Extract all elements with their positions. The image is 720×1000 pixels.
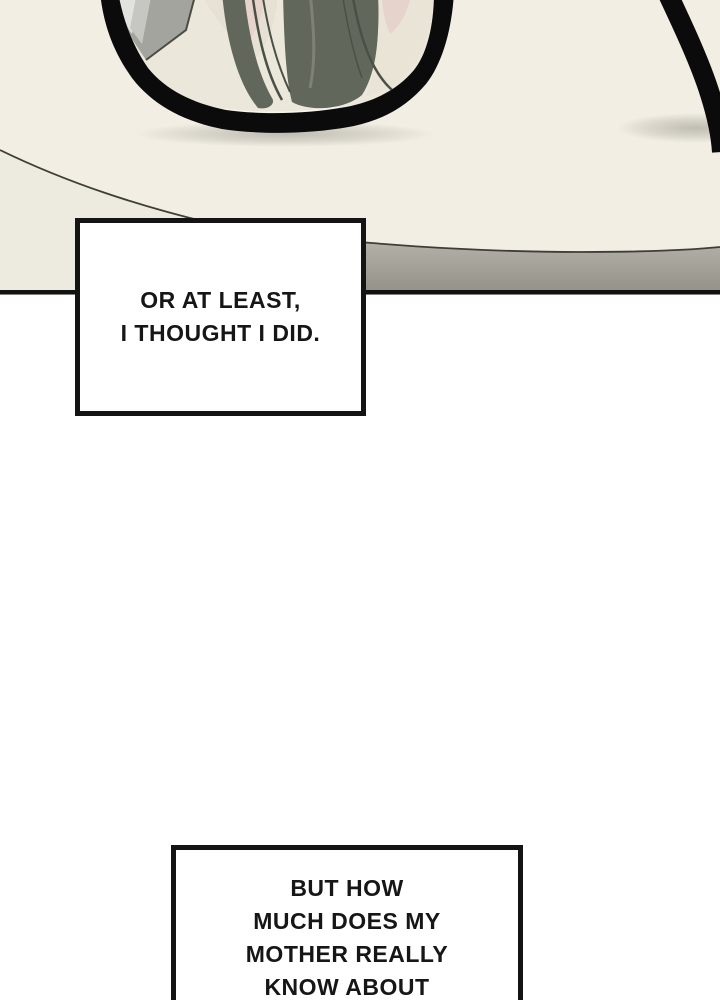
narration-box-1: OR AT LEAST, I THOUGHT I DID. (75, 218, 366, 416)
narration-line: KNOW ABOUT (264, 971, 429, 1000)
narration-line: I THOUGHT I DID. (121, 317, 321, 350)
narration-box-2: BUT HOW MUCH DOES MY MOTHER REALLY KNOW … (171, 845, 523, 1000)
webtoon-page: OR AT LEAST, I THOUGHT I DID. BUT HOW MU… (0, 0, 720, 1000)
narration-line: OR AT LEAST, (140, 284, 301, 317)
narration-line: MOTHER REALLY (246, 938, 448, 971)
narration-line: MUCH DOES MY (253, 905, 440, 938)
narration-line: BUT HOW (290, 872, 403, 905)
